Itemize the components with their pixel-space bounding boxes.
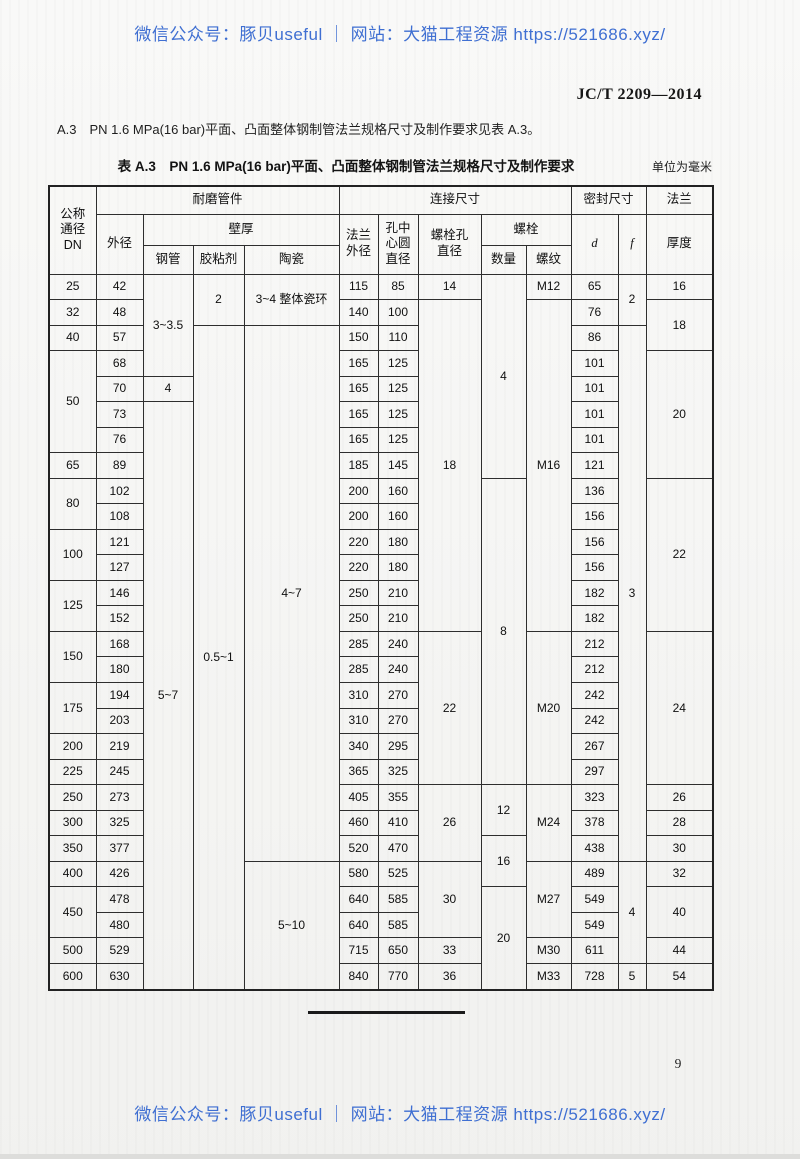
data-cell: 220 (339, 555, 378, 581)
data-cell: M12 (526, 274, 571, 300)
data-cell: 285 (339, 631, 378, 657)
data-cell: M27 (526, 861, 571, 938)
data-cell: 250 (339, 580, 378, 606)
data-cell: 18 (418, 300, 481, 632)
page-number: 9 (648, 1056, 708, 1072)
data-cell: 57 (96, 325, 143, 351)
header-cell: 钢管 (143, 245, 193, 274)
table-end-rule (308, 1011, 465, 1014)
data-cell: 127 (96, 555, 143, 581)
data-cell: 250 (49, 785, 96, 811)
data-cell: 325 (96, 810, 143, 836)
data-cell: 100 (378, 300, 418, 326)
data-cell: 50 (49, 351, 96, 453)
header-cell: 螺栓孔 直径 (418, 214, 481, 274)
data-cell: 365 (339, 759, 378, 785)
data-cell: 175 (49, 683, 96, 734)
data-cell: 30 (646, 836, 713, 862)
data-cell: 180 (96, 657, 143, 683)
data-cell: 210 (378, 580, 418, 606)
data-cell: 355 (378, 785, 418, 811)
data-cell: 165 (339, 402, 378, 428)
data-cell: 580 (339, 861, 378, 887)
data-cell: 400 (49, 861, 96, 887)
data-cell: 640 (339, 887, 378, 913)
data-cell: 220 (339, 529, 378, 555)
data-cell: 242 (571, 683, 618, 709)
data-cell: 8 (481, 478, 526, 784)
data-cell: 310 (339, 708, 378, 734)
data-cell: 295 (378, 734, 418, 760)
data-cell: 240 (378, 657, 418, 683)
data-cell: 30 (418, 861, 481, 938)
table-row: 735~7165125101 (49, 402, 713, 428)
data-cell: 5 (618, 963, 646, 990)
data-cell: 242 (571, 708, 618, 734)
data-cell: 478 (96, 887, 143, 913)
data-cell: 5~7 (143, 402, 193, 990)
data-cell: 40 (646, 887, 713, 938)
data-cell: 500 (49, 938, 96, 964)
data-cell: 630 (96, 963, 143, 990)
data-cell: 165 (339, 427, 378, 453)
scan-bottom-edge (0, 1154, 800, 1159)
data-cell: 489 (571, 861, 618, 887)
table-head: 公称 通径 DN耐磨管件连接尺寸密封尺寸法兰外径壁厚法兰 外径孔中 心圆 直径螺… (49, 186, 713, 274)
data-cell: 549 (571, 887, 618, 913)
data-cell: 180 (378, 555, 418, 581)
data-cell: 16 (481, 836, 526, 887)
header-cell: f (618, 214, 646, 274)
header-cell: 法兰 外径 (339, 214, 378, 274)
data-cell: 14 (418, 274, 481, 300)
data-cell: 200 (339, 504, 378, 530)
data-cell: 529 (96, 938, 143, 964)
unit-note: 单位为毫米 (644, 158, 712, 175)
data-cell: 273 (96, 785, 143, 811)
data-cell: 136 (571, 478, 618, 504)
data-cell: 65 (49, 453, 96, 479)
data-cell: 4 (143, 376, 193, 402)
data-cell: 405 (339, 785, 378, 811)
table-caption: 表 A.3 PN 1.6 MPa(16 bar)平面、凸面整体钢制管法兰规格尺寸… (48, 155, 644, 175)
data-cell: 225 (49, 759, 96, 785)
data-cell: 85 (378, 274, 418, 300)
data-cell: 340 (339, 734, 378, 760)
data-cell: 770 (378, 963, 418, 990)
data-cell: 520 (339, 836, 378, 862)
data-cell: 25 (49, 274, 96, 300)
data-cell: 180 (378, 529, 418, 555)
table-row: 外径壁厚法兰 外径孔中 心圆 直径螺栓孔 直径螺栓df厚度 (49, 214, 713, 245)
header-cell: d (571, 214, 618, 274)
data-cell: 115 (339, 274, 378, 300)
data-cell: 70 (96, 376, 143, 402)
data-cell: 611 (571, 938, 618, 964)
data-cell: 250 (339, 606, 378, 632)
data-cell: 297 (571, 759, 618, 785)
data-cell: 525 (378, 861, 418, 887)
data-cell: 54 (646, 963, 713, 990)
data-cell: 285 (339, 657, 378, 683)
data-cell: 150 (49, 631, 96, 682)
data-cell: 728 (571, 963, 618, 990)
data-cell: 76 (571, 300, 618, 326)
data-cell: 3 (618, 325, 646, 861)
data-cell: 460 (339, 810, 378, 836)
data-cell: M24 (526, 785, 571, 862)
data-cell: 200 (339, 478, 378, 504)
header-cell: 密封尺寸 (571, 186, 646, 214)
data-cell: 270 (378, 683, 418, 709)
data-cell: 22 (418, 631, 481, 784)
data-cell: 470 (378, 836, 418, 862)
header-cell: 数量 (481, 245, 526, 274)
data-cell: 42 (96, 274, 143, 300)
data-cell: 150 (339, 325, 378, 351)
data-cell: 26 (418, 785, 481, 862)
table-row: 704165125101 (49, 376, 713, 402)
data-cell: 100 (49, 529, 96, 580)
data-cell: 125 (378, 427, 418, 453)
watermark-top: 微信公众号：豚贝useful ｜ 网站：大猫工程资源 https://52168… (0, 20, 800, 45)
data-cell: 12 (481, 785, 526, 836)
data-cell: 200 (49, 734, 96, 760)
data-cell: 325 (378, 759, 418, 785)
data-cell: 585 (378, 887, 418, 913)
data-cell: 3~3.5 (143, 274, 193, 376)
data-cell: 33 (418, 938, 481, 964)
data-cell: 156 (571, 555, 618, 581)
data-cell: 125 (378, 376, 418, 402)
data-cell: 378 (571, 810, 618, 836)
header-cell: 螺纹 (526, 245, 571, 274)
header-cell: 公称 通径 DN (49, 186, 96, 274)
data-cell: 165 (339, 351, 378, 377)
data-cell: 140 (339, 300, 378, 326)
data-cell: 310 (339, 683, 378, 709)
data-cell: 4 (481, 274, 526, 478)
data-cell: 48 (96, 300, 143, 326)
data-cell: 86 (571, 325, 618, 351)
data-cell: 450 (49, 887, 96, 938)
data-cell: 125 (378, 351, 418, 377)
data-cell: 323 (571, 785, 618, 811)
data-cell: 300 (49, 810, 96, 836)
data-cell: 160 (378, 478, 418, 504)
data-cell: 182 (571, 606, 618, 632)
header-cell: 连接尺寸 (339, 186, 571, 214)
data-cell: 152 (96, 606, 143, 632)
data-cell: 101 (571, 402, 618, 428)
header-cell: 孔中 心圆 直径 (378, 214, 418, 274)
data-cell: 585 (378, 912, 418, 938)
data-cell: 110 (378, 325, 418, 351)
header-cell: 胶粘剂 (193, 245, 244, 274)
data-cell: 350 (49, 836, 96, 862)
data-cell: 22 (646, 478, 713, 631)
data-cell: 16 (646, 274, 713, 300)
table-row: 公称 通径 DN耐磨管件连接尺寸密封尺寸法兰 (49, 186, 713, 214)
data-cell: 40 (49, 325, 96, 351)
section-paragraph: A.3 PN 1.6 MPa(16 bar)平面、凸面整体钢制管法兰规格尺寸及制… (57, 121, 717, 138)
data-cell: 20 (481, 887, 526, 990)
data-cell: 28 (646, 810, 713, 836)
data-cell: 101 (571, 351, 618, 377)
data-cell: 165 (339, 376, 378, 402)
standard-code-heading: JC/T 2209—2014 (0, 86, 702, 104)
flange-spec-table: 公称 通径 DN耐磨管件连接尺寸密封尺寸法兰外径壁厚法兰 外径孔中 心圆 直径螺… (48, 185, 714, 991)
header-cell: 螺栓 (481, 214, 571, 245)
data-cell: 203 (96, 708, 143, 734)
data-cell: 840 (339, 963, 378, 990)
data-cell: 80 (49, 478, 96, 529)
data-cell: 3~4 整体瓷环 (244, 274, 339, 325)
data-cell: 101 (571, 376, 618, 402)
data-cell: M20 (526, 631, 571, 784)
header-cell: 厚度 (646, 214, 713, 274)
data-cell: 270 (378, 708, 418, 734)
data-cell: 20 (646, 351, 713, 479)
data-cell: 146 (96, 580, 143, 606)
data-cell: 549 (571, 912, 618, 938)
data-cell: 5~10 (244, 861, 339, 990)
data-cell: 212 (571, 631, 618, 657)
data-cell: 73 (96, 402, 143, 428)
data-cell: 426 (96, 861, 143, 887)
data-cell: 240 (378, 631, 418, 657)
data-cell: 65 (571, 274, 618, 300)
header-cell: 外径 (96, 214, 143, 274)
data-cell: 182 (571, 580, 618, 606)
data-cell: 101 (571, 427, 618, 453)
data-cell: 2 (618, 274, 646, 325)
header-cell: 陶瓷 (244, 245, 339, 274)
data-cell: M16 (526, 300, 571, 632)
data-cell: 156 (571, 504, 618, 530)
data-cell: 438 (571, 836, 618, 862)
header-cell: 耐磨管件 (96, 186, 339, 214)
data-cell: 160 (378, 504, 418, 530)
data-cell: 640 (339, 912, 378, 938)
data-cell: 102 (96, 478, 143, 504)
data-cell: 18 (646, 300, 713, 351)
table-caption-row: 表 A.3 PN 1.6 MPa(16 bar)平面、凸面整体钢制管法兰规格尺寸… (48, 155, 712, 175)
watermark-bottom: 微信公众号：豚贝useful ｜ 网站：大猫工程资源 https://52168… (0, 1100, 800, 1125)
data-cell: 32 (646, 861, 713, 887)
data-cell: 24 (646, 631, 713, 784)
data-cell: 185 (339, 453, 378, 479)
data-cell: 121 (571, 453, 618, 479)
data-cell: 715 (339, 938, 378, 964)
data-cell: 108 (96, 504, 143, 530)
data-cell: 125 (49, 580, 96, 631)
table-row: 25423~3.523~4 整体瓷环11585144M1265216 (49, 274, 713, 300)
data-cell: 125 (378, 402, 418, 428)
data-cell: 4~7 (244, 325, 339, 861)
data-cell: 26 (646, 785, 713, 811)
data-cell: 2 (193, 274, 244, 325)
data-cell: 32 (49, 300, 96, 326)
header-cell: 壁厚 (143, 214, 339, 245)
data-cell: 219 (96, 734, 143, 760)
data-cell: 480 (96, 912, 143, 938)
data-cell: 121 (96, 529, 143, 555)
data-cell: 36 (418, 963, 481, 990)
data-cell: 145 (378, 453, 418, 479)
data-cell: 0.5~1 (193, 325, 244, 990)
data-cell: 89 (96, 453, 143, 479)
data-cell: 44 (646, 938, 713, 964)
data-cell: 4 (618, 861, 646, 963)
data-cell: 168 (96, 631, 143, 657)
data-cell: 245 (96, 759, 143, 785)
data-cell: 377 (96, 836, 143, 862)
data-cell: 194 (96, 683, 143, 709)
data-cell: 156 (571, 529, 618, 555)
data-cell: 212 (571, 657, 618, 683)
data-cell: 68 (96, 351, 143, 377)
data-cell: 600 (49, 963, 96, 990)
data-cell: 267 (571, 734, 618, 760)
data-cell: 650 (378, 938, 418, 964)
data-cell: 210 (378, 606, 418, 632)
table-body: 25423~3.523~4 整体瓷环11585144M1265216324814… (49, 274, 713, 990)
header-cell: 法兰 (646, 186, 713, 214)
data-cell: 410 (378, 810, 418, 836)
data-cell: M30 (526, 938, 571, 964)
data-cell: M33 (526, 963, 571, 990)
data-cell: 76 (96, 427, 143, 453)
